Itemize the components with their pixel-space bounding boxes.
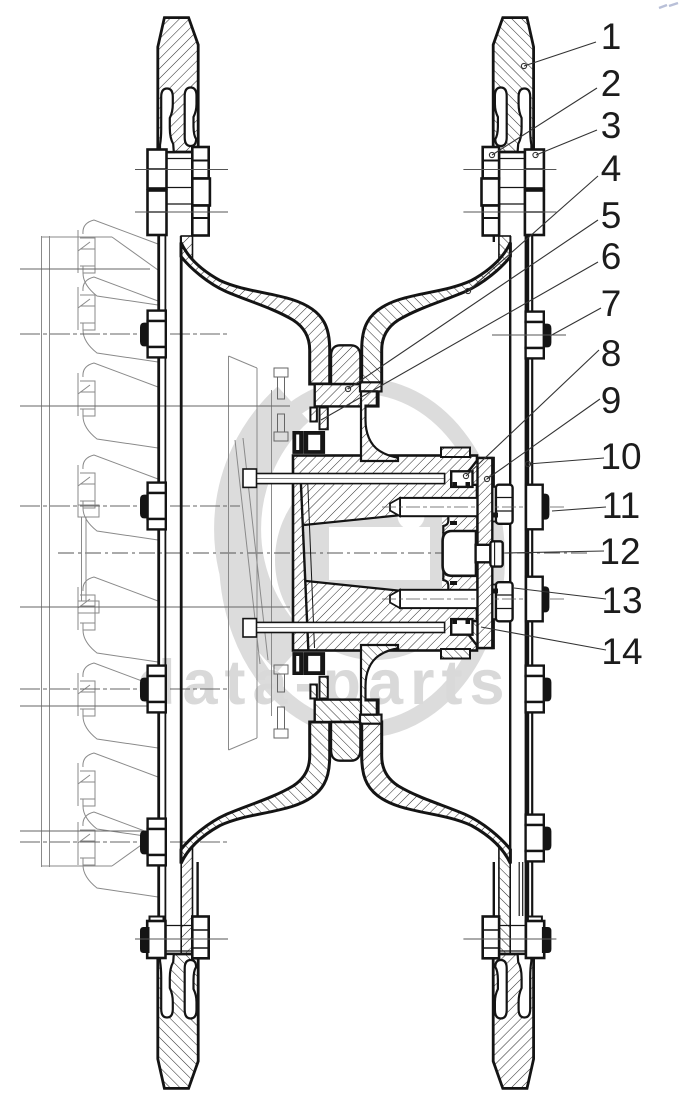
svg-text:4: 4	[601, 148, 622, 189]
svg-text:14: 14	[601, 631, 642, 672]
svg-text:11: 11	[602, 485, 640, 526]
svg-text:9: 9	[601, 380, 622, 421]
svg-text:7: 7	[601, 283, 622, 324]
svg-text:5: 5	[601, 195, 622, 236]
svg-text:6: 6	[601, 236, 622, 277]
svg-text:8: 8	[601, 333, 622, 374]
svg-text:2: 2	[601, 63, 622, 104]
svg-text:12: 12	[599, 531, 640, 572]
svg-text:3: 3	[601, 105, 622, 146]
svg-text:13: 13	[601, 580, 642, 621]
svg-text:1: 1	[601, 16, 622, 57]
svg-text:10: 10	[600, 436, 641, 477]
